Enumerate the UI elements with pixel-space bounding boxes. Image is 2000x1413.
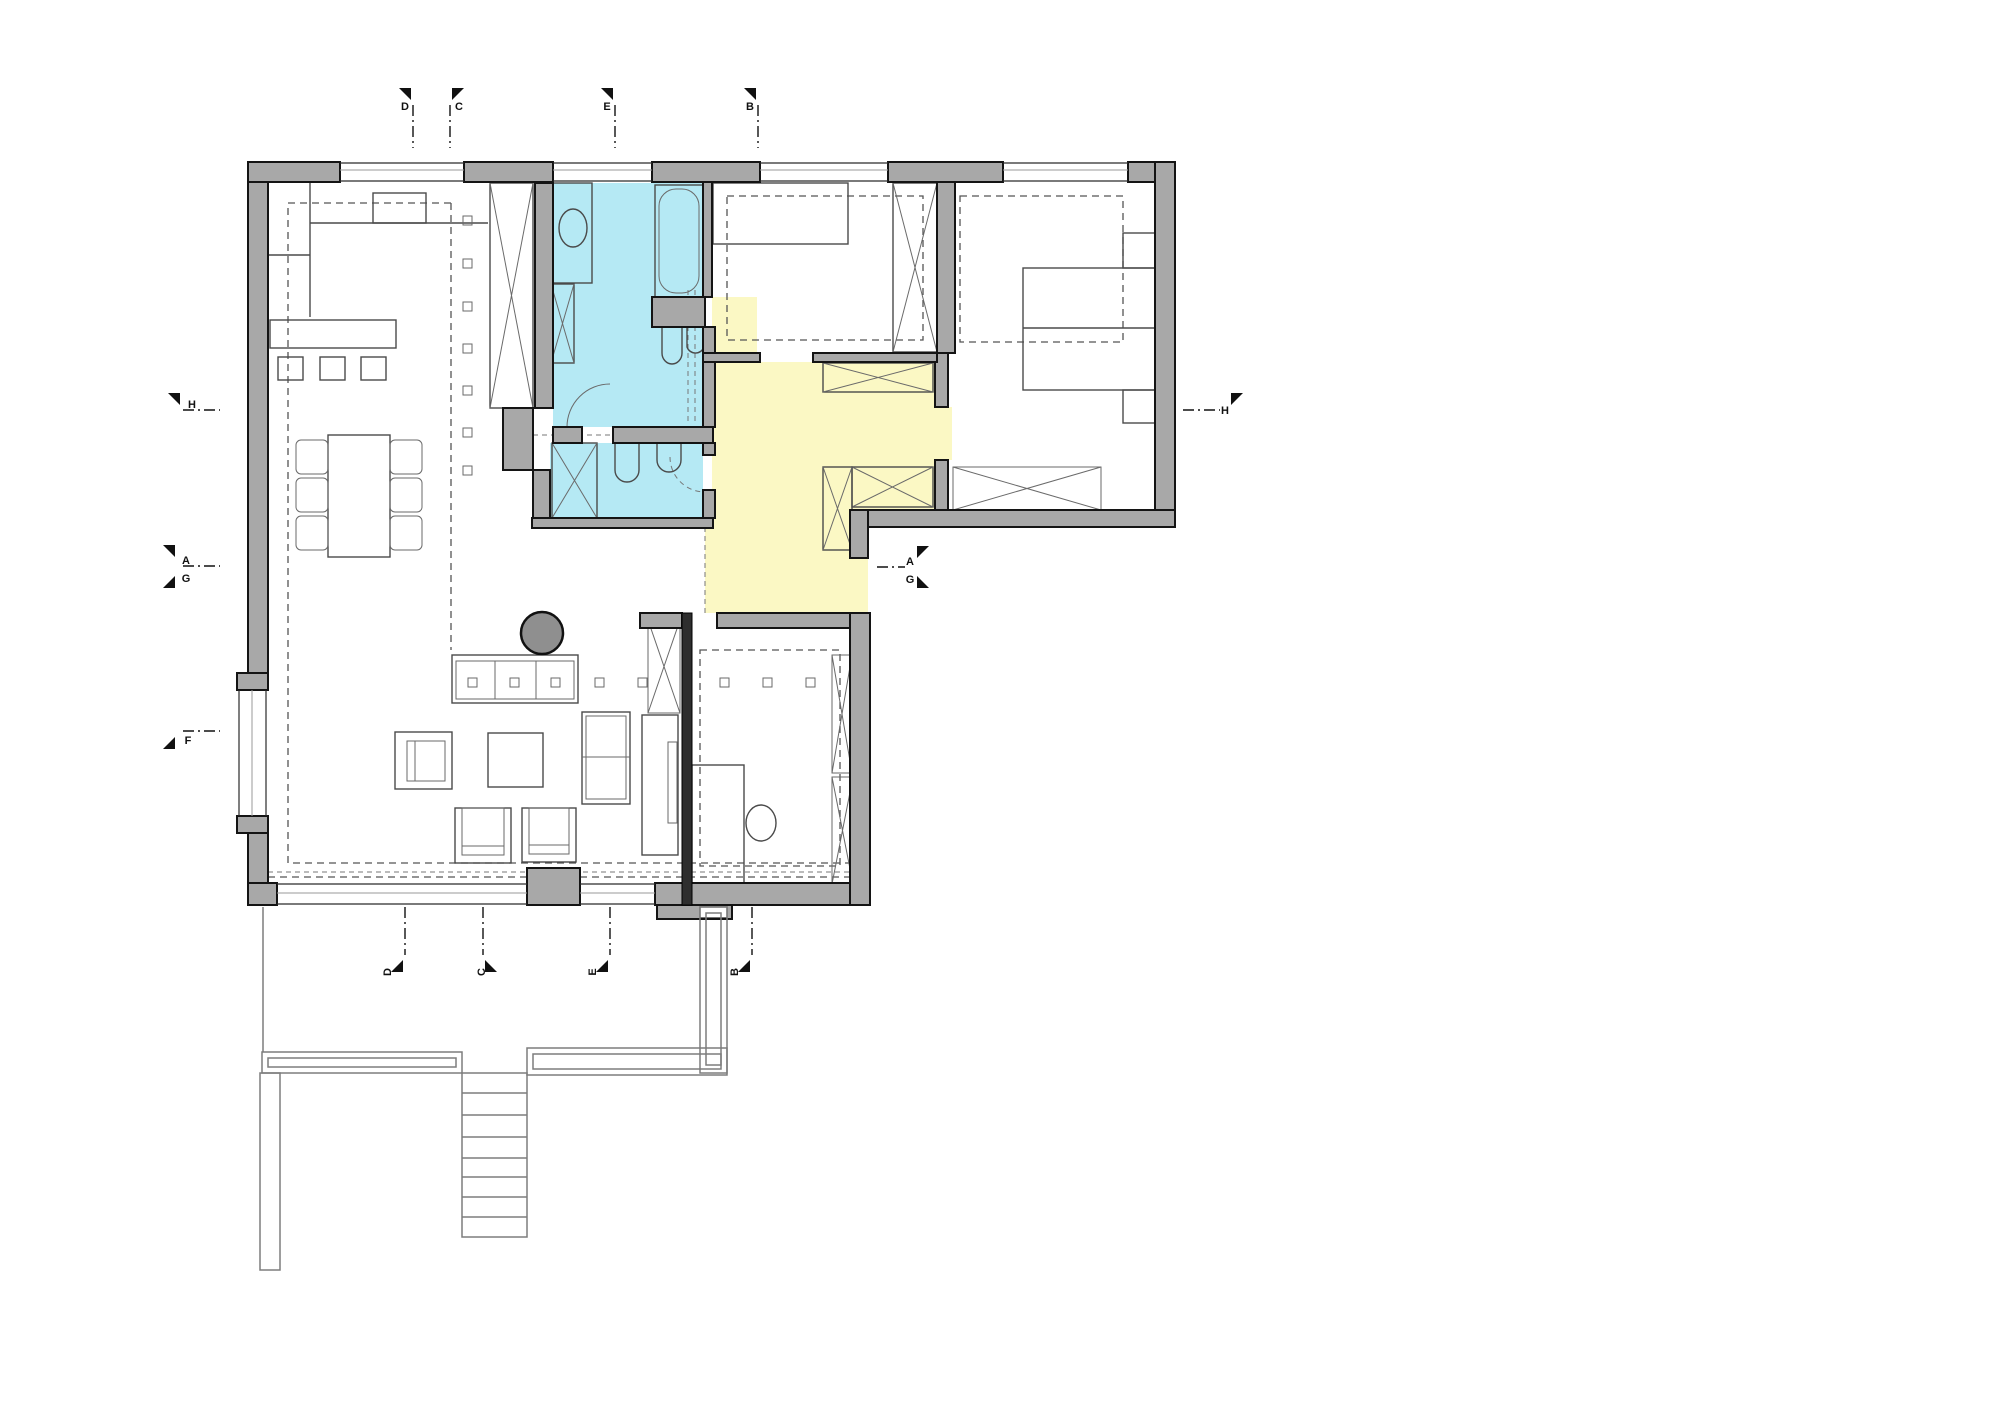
section-marker-top-c: C (450, 88, 464, 148)
tall-cabinet-x (490, 183, 533, 408)
column (521, 612, 563, 654)
marker-label: D (401, 101, 409, 113)
marker-label: H (1221, 405, 1229, 417)
terrace-side-wall (260, 1073, 280, 1270)
terrace-railing-left (262, 1052, 462, 1073)
bed-1 (713, 183, 848, 244)
section-marker-left-h: H (168, 393, 220, 411)
office-furniture (692, 655, 853, 885)
armchair-with-footstool (395, 732, 452, 789)
office-partition-wall (682, 613, 692, 905)
terrace-railing-right (527, 1048, 727, 1075)
section-marker-top-d: D (399, 88, 413, 148)
double-bed (1023, 268, 1157, 390)
bedroom2-furniture (953, 233, 1157, 510)
marker-label: B (746, 101, 754, 113)
bedroom2-window-x (953, 467, 1101, 510)
bathroom-zone-fill (550, 183, 703, 518)
nightstand-2 (1123, 390, 1157, 423)
armchair-2 (455, 808, 511, 863)
marker-label: E (587, 968, 599, 975)
coffee-table (488, 733, 543, 787)
section-marker-top-e: E (601, 88, 615, 148)
marker-label: H (188, 399, 196, 411)
section-marker-right-h: H (1183, 393, 1243, 417)
tv-screen (668, 742, 677, 823)
bottom-windows (277, 884, 655, 904)
marker-label: C (455, 101, 463, 113)
armchair-3 (522, 808, 576, 862)
marker-label: A (906, 556, 914, 568)
sideboard (452, 655, 578, 703)
floor-plan-drawing: D C E B D C E B H (0, 0, 2000, 1413)
marker-label: D (382, 968, 394, 976)
nightstand-1 (1123, 233, 1157, 268)
spotlight-squares-row (468, 678, 815, 687)
cooker-hood (373, 193, 426, 223)
stairs (462, 1073, 527, 1237)
wardrobe1-x (893, 183, 937, 352)
marker-label: G (182, 573, 191, 585)
section-marker-top-b: B (744, 88, 758, 148)
marker-label: F (185, 735, 192, 747)
marker-label: A (182, 555, 190, 567)
section-marker-bottom-c: C (476, 907, 497, 976)
terrace (260, 907, 727, 1270)
marker-label: C (476, 968, 488, 976)
tv-unit (642, 715, 678, 855)
marker-label: E (603, 101, 610, 113)
dining-furniture (296, 435, 422, 557)
section-marker-bottom-e: E (587, 907, 610, 976)
window-panel-x (648, 620, 680, 713)
section-marker-left-a-g: A G (163, 545, 220, 588)
desk-chair (746, 805, 776, 841)
section-marker-left-f: F (163, 731, 220, 749)
marker-label: G (906, 574, 915, 586)
dining-table (328, 435, 390, 557)
hall-zone-fill (705, 297, 952, 613)
section-marker-right-a-g: A G (877, 546, 929, 588)
marker-label: B (729, 968, 741, 976)
kitchen-counter (270, 320, 396, 348)
kitchen-furniture (268, 183, 533, 475)
left-window (239, 690, 266, 816)
section-marker-bottom-d: D (382, 907, 405, 976)
floor-plan-canvas: D C E B D C E B H (0, 0, 2000, 1413)
spotlight-squares-column (463, 216, 472, 475)
sofa (582, 712, 630, 804)
